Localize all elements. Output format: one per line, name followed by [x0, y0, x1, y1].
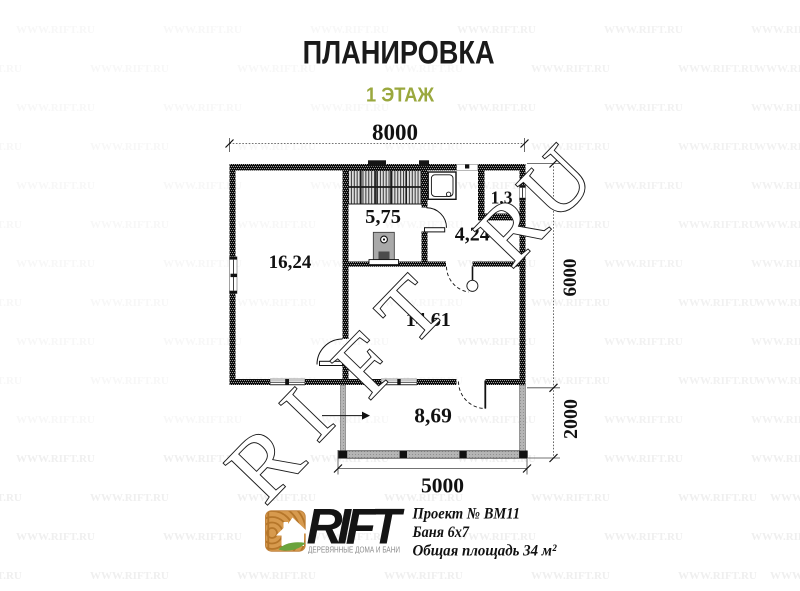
svg-text:Баня 6х7: Баня 6х7 [412, 524, 470, 541]
svg-text:WWW.RIFT.RU: WWW.RIFT.RU [16, 180, 95, 192]
svg-text:WWW.RIFT.RU: WWW.RIFT.RU [755, 219, 800, 231]
svg-text:WWW.RIFT.RU: WWW.RIFT.RU [90, 492, 169, 504]
svg-text:WWW.RIFT.RU: WWW.RIFT.RU [16, 414, 95, 426]
svg-text:WWW.RIFT.RU: WWW.RIFT.RU [163, 24, 242, 36]
svg-text:WWW.RIFT.RU: WWW.RIFT.RU [16, 336, 95, 348]
svg-text:WWW.RIFT.RU: WWW.RIFT.RU [770, 492, 800, 504]
svg-text:WWW.RIFT.RU: WWW.RIFT.RU [531, 375, 610, 387]
svg-text:WWW.RIFT.RU: WWW.RIFT.RU [16, 24, 95, 36]
svg-text:WWW.RIFT.RU: WWW.RIFT.RU [16, 102, 95, 114]
svg-text:WWW.RIFT.RU: WWW.RIFT.RU [678, 570, 757, 582]
svg-text:WWW.RIFT.RU: WWW.RIFT.RU [755, 63, 800, 75]
svg-text:WWW.RIFT.RU: WWW.RIFT.RU [0, 141, 22, 153]
svg-text:WWW.RIFT.RU: WWW.RIFT.RU [604, 336, 683, 348]
svg-text:WWW.RIFT.RU: WWW.RIFT.RU [678, 492, 757, 504]
svg-text:1 ЭТАЖ: 1 ЭТАЖ [366, 84, 434, 107]
svg-text:WWW.RIFT.RU: WWW.RIFT.RU [237, 141, 316, 153]
svg-text:16,24: 16,24 [269, 252, 312, 273]
svg-text:6000: 6000 [560, 259, 581, 297]
svg-text:WWW.RIFT.RU: WWW.RIFT.RU [0, 63, 22, 75]
svg-text:WWW.RIFT.RU: WWW.RIFT.RU [90, 63, 169, 75]
svg-text:WWW.RIFT.RU: WWW.RIFT.RU [531, 492, 610, 504]
svg-text:WWW.RIFT.RU: WWW.RIFT.RU [678, 219, 757, 231]
svg-text:WWW.RIFT.RU: WWW.RIFT.RU [604, 414, 683, 426]
svg-text:WWW.RIFT.RU: WWW.RIFT.RU [163, 102, 242, 114]
svg-text:WWW.RIFT.RU: WWW.RIFT.RU [237, 219, 316, 231]
svg-text:Общая площадь 34 м²: Общая площадь 34 м² [413, 543, 558, 560]
svg-text:5000: 5000 [421, 474, 464, 498]
svg-text:WWW.RIFT.RU: WWW.RIFT.RU [90, 297, 169, 309]
svg-text:WWW.RIFT.RU: WWW.RIFT.RU [678, 297, 757, 309]
svg-text:WWW.RIFT.RU: WWW.RIFT.RU [751, 453, 800, 465]
svg-text:WWW.RIFT.RU: WWW.RIFT.RU [751, 336, 800, 348]
svg-text:WWW.RIFT.RU: WWW.RIFT.RU [751, 24, 800, 36]
svg-text:ДЕРЕВЯННЫЕ ДОМА И БАНИ: ДЕРЕВЯННЫЕ ДОМА И БАНИ [308, 546, 400, 555]
svg-text:WWW.RIFT.RU: WWW.RIFT.RU [16, 531, 95, 543]
svg-text:WWW.RIFT.RU: WWW.RIFT.RU [678, 141, 757, 153]
svg-text:WWW.RIFT.RU: WWW.RIFT.RU [90, 375, 169, 387]
svg-text:WWW.RIFT.RU: WWW.RIFT.RU [0, 219, 22, 231]
svg-text:WWW.RIFT.RU: WWW.RIFT.RU [751, 180, 800, 192]
svg-text:WWW.RIFT.RU: WWW.RIFT.RU [678, 63, 757, 75]
svg-text:WWW.RIFT.RU: WWW.RIFT.RU [0, 375, 22, 387]
svg-text:WWW.RIFT.RU: WWW.RIFT.RU [0, 297, 22, 309]
svg-text:WWW.RIFT.RU: WWW.RIFT.RU [604, 258, 683, 270]
svg-text:8,69: 8,69 [414, 404, 452, 428]
svg-text:WWW.RIFT.RU: WWW.RIFT.RU [163, 531, 242, 543]
svg-text:WWW.RIFT.RU: WWW.RIFT.RU [755, 297, 800, 309]
svg-text:WWW.RIFT.RU: WWW.RIFT.RU [531, 570, 610, 582]
svg-text:WWW.RIFT.RU: WWW.RIFT.RU [237, 297, 316, 309]
svg-text:WWW.RIFT.RU: WWW.RIFT.RU [604, 102, 683, 114]
svg-text:WWW.RIFT.RU: WWW.RIFT.RU [90, 570, 169, 582]
svg-text:5,75: 5,75 [365, 206, 401, 228]
svg-text:WWW.RIFT.RU: WWW.RIFT.RU [751, 531, 800, 543]
svg-text:WWW.RIFT.RU: WWW.RIFT.RU [604, 24, 683, 36]
svg-text:WWW.RIFT.RU: WWW.RIFT.RU [0, 570, 22, 582]
svg-text:WWW.RIFT.RU: WWW.RIFT.RU [770, 570, 800, 582]
svg-text:WWW.RIFT.RU: WWW.RIFT.RU [90, 141, 169, 153]
svg-text:WWW.RIFT.RU: WWW.RIFT.RU [678, 375, 757, 387]
svg-text:WWW.RIFT.RU: WWW.RIFT.RU [755, 141, 800, 153]
svg-text:2000: 2000 [560, 399, 582, 439]
svg-text:WWW.RIFT.RU: WWW.RIFT.RU [751, 258, 800, 270]
svg-text:WWW.RIFT.RU: WWW.RIFT.RU [531, 297, 610, 309]
svg-text:WWW.RIFT.RU: WWW.RIFT.RU [604, 531, 683, 543]
svg-text:WWW.RIFT.RU: WWW.RIFT.RU [16, 258, 95, 270]
svg-text:WWW.RIFT.RU: WWW.RIFT.RU [457, 102, 536, 114]
svg-text:WWW.RIFT.RU: WWW.RIFT.RU [16, 453, 95, 465]
svg-text:WWW.RIFT.RU: WWW.RIFT.RU [237, 570, 316, 582]
svg-text:WWW.RIFT.RU: WWW.RIFT.RU [604, 180, 683, 192]
svg-text:WWW.RIFT.RU: WWW.RIFT.RU [90, 219, 169, 231]
svg-text:WWW.RIFT.RU: WWW.RIFT.RU [755, 375, 800, 387]
svg-text:WWW.RIFT.RU: WWW.RIFT.RU [384, 570, 463, 582]
svg-text:WWW.RIFT.RU: WWW.RIFT.RU [751, 414, 800, 426]
svg-text:ПЛАНИРОВКА: ПЛАНИРОВКА [303, 35, 495, 71]
svg-text:Проект № ВМ11: Проект № ВМ11 [412, 506, 520, 523]
svg-text:WWW.RIFT.RU: WWW.RIFT.RU [751, 102, 800, 114]
svg-text:WWW.RIFT.RU: WWW.RIFT.RU [0, 492, 22, 504]
svg-text:WWW.RIFT.RU: WWW.RIFT.RU [604, 453, 683, 465]
svg-text:WWW.RIFT.RU: WWW.RIFT.RU [531, 63, 610, 75]
svg-text:8000: 8000 [372, 120, 418, 145]
